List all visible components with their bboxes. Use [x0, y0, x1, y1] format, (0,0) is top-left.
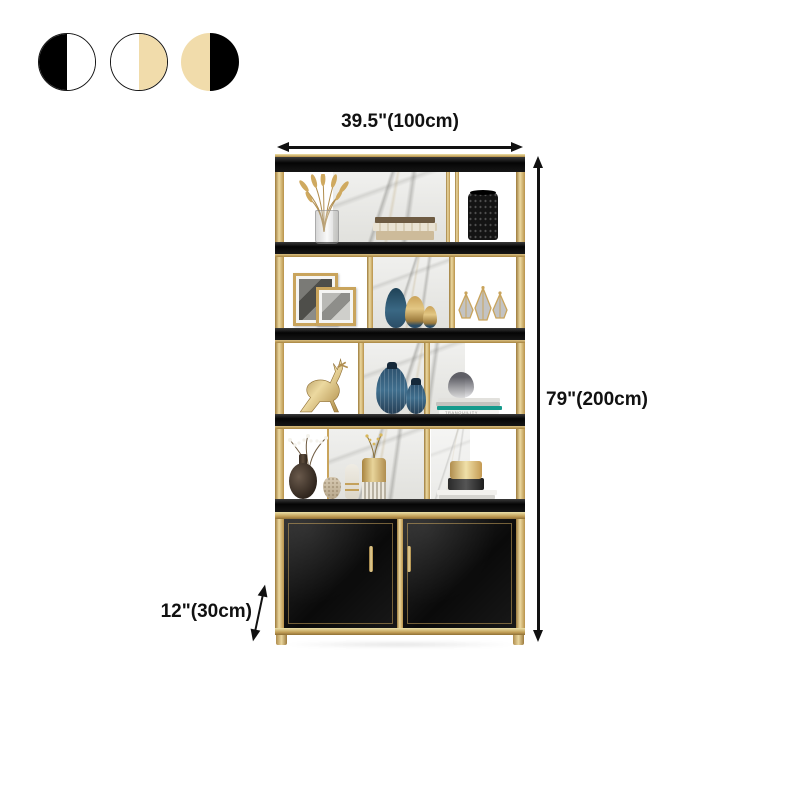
gold-deer-figurine — [292, 352, 354, 414]
gold-wire-lanterns — [458, 286, 508, 328]
shelf-board — [275, 414, 525, 426]
shelf-board — [275, 242, 525, 254]
book — [373, 223, 437, 231]
color-swatch-white-cream[interactable] — [110, 33, 168, 91]
product-dimension-diagram: 39.5"(100cm) 79"(200cm) 12"(30cm) — [0, 0, 800, 800]
floor-shadow — [282, 641, 518, 648]
smoky-glass-vase — [289, 463, 317, 499]
cabinet-center-stile — [397, 519, 403, 628]
cabinet-handle-left[interactable] — [369, 546, 373, 572]
cabinet-door-left[interactable] — [284, 519, 397, 628]
gold-cylinder-vase — [362, 458, 386, 499]
depth-dimension-label: 12"(30cm) — [136, 601, 252, 623]
cabinet-bottom-rail — [275, 628, 525, 635]
dried-flower-sprig — [364, 432, 384, 460]
divider-post — [358, 343, 364, 414]
swatch-half — [39, 34, 67, 90]
gold-teardrop-vase — [405, 296, 425, 328]
arrow-line — [285, 146, 515, 149]
divider-post — [449, 257, 455, 328]
picture-frame-small — [316, 287, 356, 326]
framed-photo — [322, 293, 350, 320]
swatch-half — [210, 33, 239, 91]
blue-ribbed-vase-small — [406, 382, 426, 414]
display-section-2 — [284, 257, 516, 328]
storage-box-base — [448, 478, 484, 490]
divider-post — [367, 257, 373, 328]
color-swatch-black-white[interactable] — [38, 33, 96, 91]
shelf-board — [275, 499, 525, 512]
book-tranquility: TRANQUILITY — [439, 410, 499, 414]
arrow-line — [253, 591, 265, 635]
height-dimension-label: 79"(200cm) — [546, 389, 648, 411]
storage-box-gold-lid — [450, 461, 482, 479]
divider-post — [446, 172, 450, 242]
glass-vase — [315, 210, 339, 244]
color-swatch-cream-black[interactable] — [181, 33, 239, 91]
divider-post — [455, 172, 459, 242]
book-stack: TRANQUILITY — [436, 398, 502, 414]
book-stack — [373, 217, 437, 240]
blue-ribbed-vase-large — [376, 366, 408, 414]
swatch-half — [111, 34, 139, 90]
etagere-bookshelf-image: TRANQUILITY — [275, 154, 525, 645]
display-section-4 — [284, 429, 516, 499]
cabinet-top-rail — [275, 512, 525, 519]
arrow-line — [537, 164, 540, 634]
width-dimension-arrow — [277, 142, 523, 152]
cabinet-handle-right[interactable] — [407, 546, 411, 572]
shelf-board — [275, 157, 525, 172]
book-spine-text: TRANQUILITY — [445, 410, 478, 415]
book — [439, 495, 495, 499]
shelf-board — [275, 328, 525, 340]
black-woven-vase — [468, 192, 498, 240]
white-book-stack — [437, 490, 497, 499]
divider-post — [424, 429, 430, 499]
display-section-1 — [284, 172, 516, 242]
white-gold-bottle-vase — [345, 464, 359, 499]
book — [376, 231, 434, 240]
glass-diffuser-vase — [448, 372, 474, 398]
swatch-half — [67, 34, 95, 90]
swatch-half — [181, 33, 210, 91]
swatch-half — [139, 34, 167, 90]
display-section-3: TRANQUILITY — [284, 343, 516, 414]
cabinet-door-right[interactable] — [403, 519, 516, 628]
small-teardrop-vase — [423, 306, 437, 328]
cabinet — [275, 519, 525, 628]
height-dimension-arrow — [533, 156, 543, 642]
width-dimension-label: 39.5"(100cm) — [275, 111, 525, 133]
